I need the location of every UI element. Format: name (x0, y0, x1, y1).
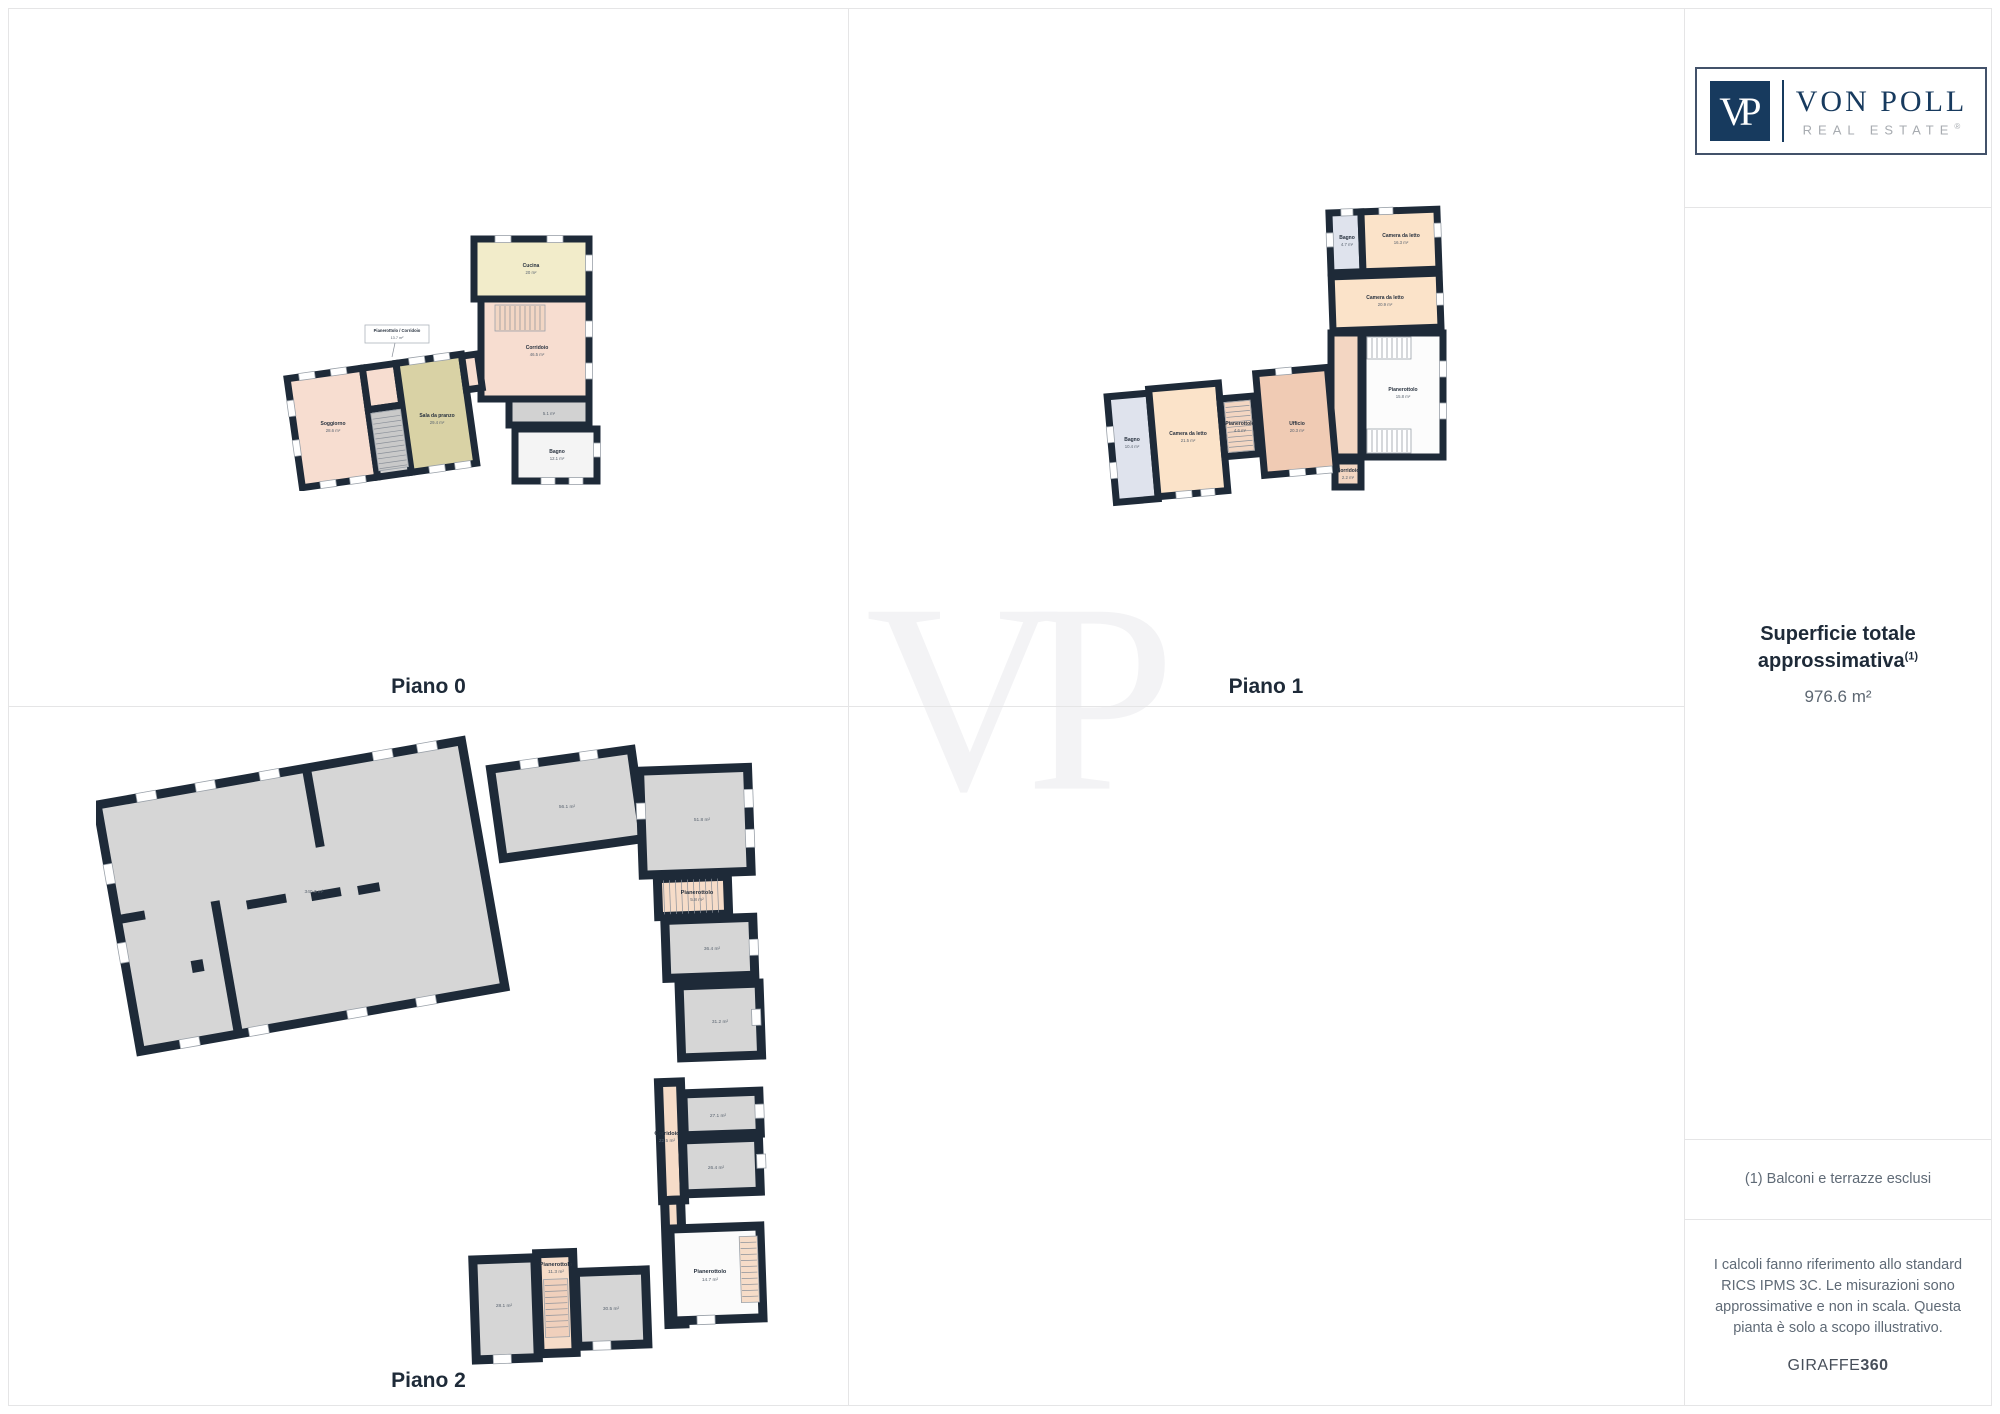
room-area-label: 27.1 m² (710, 1113, 727, 1119)
room-area-label: 29.4 m² (430, 420, 445, 425)
room-area-label: 51.8 m² (694, 817, 711, 823)
room-area-label: 4.7 m² (1341, 242, 1354, 247)
stairs-icon (495, 305, 545, 331)
room-area-label: 4.6 m² (1234, 428, 1247, 433)
total-area-value: 976.6 m² (1685, 687, 1991, 707)
room-name-label: Soggiorno (321, 421, 346, 427)
vonpoll-logo: VP VON POLL REAL ESTATE® (1695, 67, 1987, 155)
vp-monogram: VP (1719, 88, 1761, 135)
floorplan-sheet: VP (8, 8, 1992, 1406)
giraffe360-brand-number: 360 (1860, 1357, 1888, 1374)
balconies-note: (1) Balconi e terrazze esclusi (1695, 1139, 1981, 1219)
room-area-label: 20.9 m² (1378, 302, 1393, 307)
piano0-title: Piano 0 (9, 675, 848, 699)
piano0-left-wing (283, 349, 493, 491)
room-name-label: Pianerottolo / Corridoio (374, 328, 421, 333)
total-area-title-line1: Superficie totale (1760, 623, 1916, 645)
grid-divider-horizontal (9, 706, 1684, 707)
room-area-label: 20.3 m² (1290, 428, 1305, 433)
room-area-label: 15.8 m² (1396, 394, 1411, 399)
registered-mark: ® (1954, 122, 1960, 131)
giraffe360-brand-text: GIRAFFE (1787, 1357, 1860, 1374)
room-area-label: 14.7 m² (702, 1277, 719, 1283)
room-name-label: Camera da letto (1169, 431, 1207, 437)
room-name-label: Pianerottolo (540, 1262, 573, 1268)
room-name-label: Pianerottolo (681, 890, 714, 896)
room-name-label: Cucina (523, 263, 540, 269)
room-area-label: 20 m² (526, 270, 538, 275)
room-name-label: Bagno (1339, 235, 1355, 241)
room-name-label: Corridoio (1337, 468, 1360, 474)
floorplan-piano-0: Pianerottolo / Corridoio 13.7 m² Soggior… (281, 221, 611, 491)
room-name-label: Pianerottolo (694, 1269, 727, 1275)
room-area-label: 340.3 m² (305, 889, 324, 895)
room-name-label: Corridoio (654, 1131, 680, 1137)
piano2-bottom-cluster (472, 1226, 764, 1364)
room-area-label: 2.2 m² (1342, 475, 1355, 480)
room-name-label: Sala da pranzo (419, 413, 454, 419)
room-area-label: 5.1 m² (543, 411, 556, 416)
room-area-label: 21.5 m² (1181, 438, 1196, 443)
logo-wordmark: VON POLL REAL ESTATE® (1784, 85, 1985, 137)
measurement-disclaimer: I calcoli fanno riferimento allo standar… (1707, 1255, 1969, 1339)
room-callout: Pianerottolo / Corridoio 13.7 m² (365, 325, 429, 357)
piano2-main-hall (96, 736, 506, 1056)
room-area-label: 16.3 m² (1394, 240, 1409, 245)
room-area-label: 10.4 m² (1125, 444, 1140, 449)
room-name-label: Ufficio (1289, 421, 1305, 427)
room-area-label: 13.7 m² (391, 336, 405, 340)
brand-name: VON POLL (1784, 85, 1979, 119)
total-area-summary: Superficie totale approssimativa(1) 976.… (1685, 621, 1991, 707)
room-area-label: 46.5 m² (530, 352, 545, 357)
room-area-label: 22.5 m² (659, 1138, 676, 1144)
room-area-label: 5.8 m² (690, 897, 704, 903)
piano0-right-wing (474, 239, 597, 481)
room-name-label: Camera da letto (1382, 233, 1420, 239)
room-area-label: 30.5 m² (603, 1306, 620, 1312)
room-connector (462, 354, 483, 390)
piano1-left-wing (1102, 364, 1337, 504)
floorplan-piano-1: Bagno 4.7 m² Camera da letto 16.3 m² Cam… (1091, 191, 1471, 511)
floorplan-page: VP (0, 0, 2000, 1414)
info-sidebar: VP VON POLL REAL ESTATE® Superficie tota… (1685, 9, 1991, 1405)
floorplan-piano-2: 340.3 m² 56.1 m² 51.8 m² Pianerottolo 5.… (96, 711, 776, 1371)
room-area-label: 11.3 m² (548, 1269, 564, 1275)
room-area-label: 28.6 m² (326, 428, 341, 433)
room-open-space (97, 741, 505, 1051)
room-area-label: 31.2 m² (712, 1019, 729, 1025)
total-area-title-line2: approssimativa (1758, 650, 1905, 672)
room-area-label: 56.1 m² (559, 804, 576, 810)
piano1-top-wing (1325, 206, 1444, 331)
room-gray (491, 749, 644, 858)
room-area-label: 26.4 m² (708, 1165, 725, 1171)
piano2-upper-room (490, 745, 644, 858)
room-name-label: Corridoio (526, 345, 549, 351)
piano1-stair-core (1331, 333, 1447, 487)
vp-monogram-icon: VP (1710, 81, 1770, 141)
grid-divider-vertical (848, 9, 849, 1405)
room-name-label: Bagno (549, 449, 565, 455)
total-area-title: Superficie totale approssimativa(1) (1685, 621, 1991, 675)
room-name-label: Camera da letto (1366, 295, 1404, 301)
room-name-label: Pianerottolo (1388, 387, 1417, 393)
giraffe360-brand: GIRAFFE360 (1685, 1357, 1991, 1375)
room-area-label: 12.1 m² (550, 456, 565, 461)
room-area-label: 36.4 m² (704, 946, 721, 952)
footnote-marker: (1) (1905, 650, 1918, 662)
piano2-title: Piano 2 (9, 1369, 848, 1393)
room-area-label: 28.1 m² (496, 1303, 513, 1309)
brand-subtitle-text: REAL ESTATE (1803, 122, 1955, 137)
room-name-label: Bagno (1124, 437, 1140, 443)
piano1-title: Piano 1 (848, 675, 1684, 699)
room-cucina (474, 239, 589, 299)
room-bagno (515, 429, 597, 481)
room-name-label: Pianerottolo (1225, 421, 1254, 427)
brand-subtitle: REAL ESTATE® (1784, 122, 1979, 137)
